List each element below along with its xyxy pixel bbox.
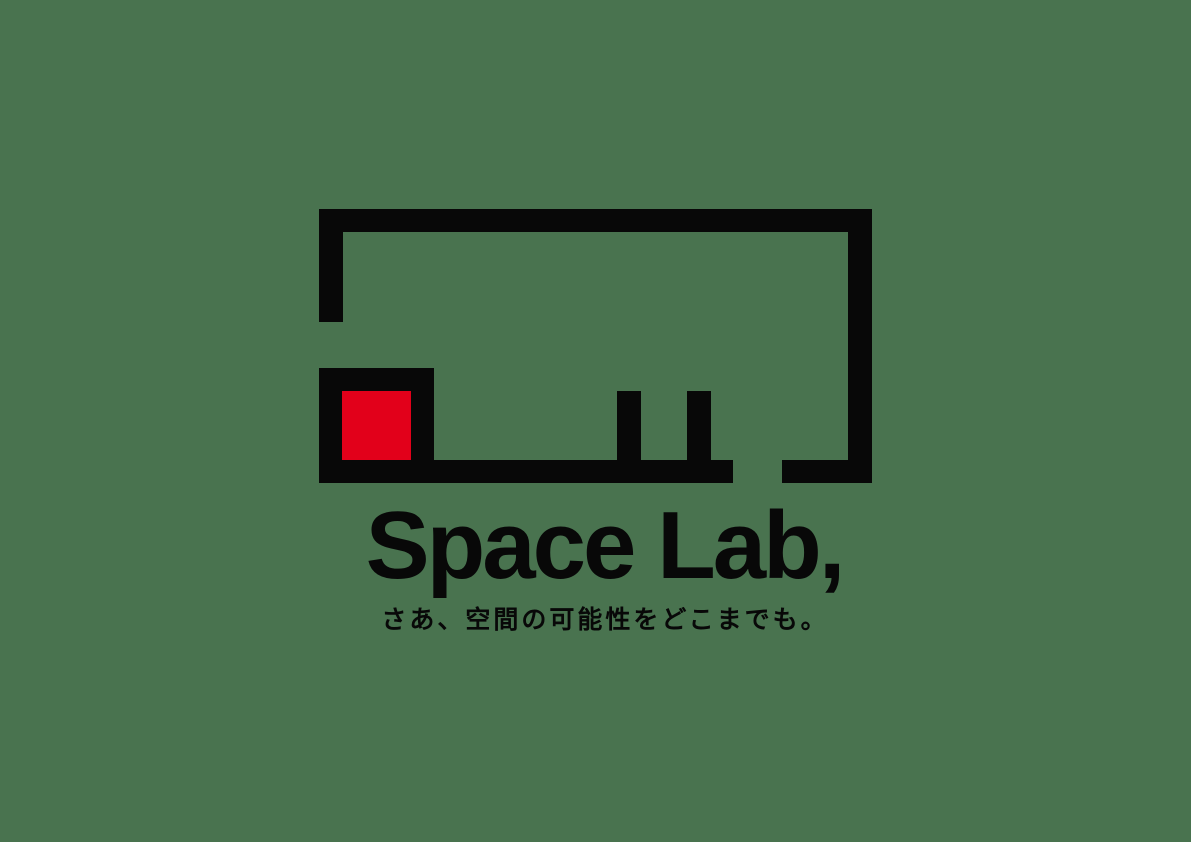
floor-plan-top-bar-icon (319, 209, 872, 232)
floor-plan-bottom-right-segment-icon (782, 460, 872, 483)
floor-plan-square-outline-icon (319, 368, 434, 483)
brand-tagline: さあ、空間の可能性をどこまでも。 (381, 605, 828, 635)
floor-plan-left-stub-icon (319, 209, 343, 322)
brand-wordmark: Space Lab, (366, 498, 843, 594)
floor-plan-inner-bar-2-icon (687, 391, 711, 460)
floor-plan-right-wall-icon (848, 209, 872, 483)
logo-canvas: Space Lab, さあ、空間の可能性をどこまでも。 (0, 0, 1191, 842)
red-square-accent-icon (342, 391, 411, 460)
floor-plan-inner-bar-1-icon (617, 391, 641, 460)
